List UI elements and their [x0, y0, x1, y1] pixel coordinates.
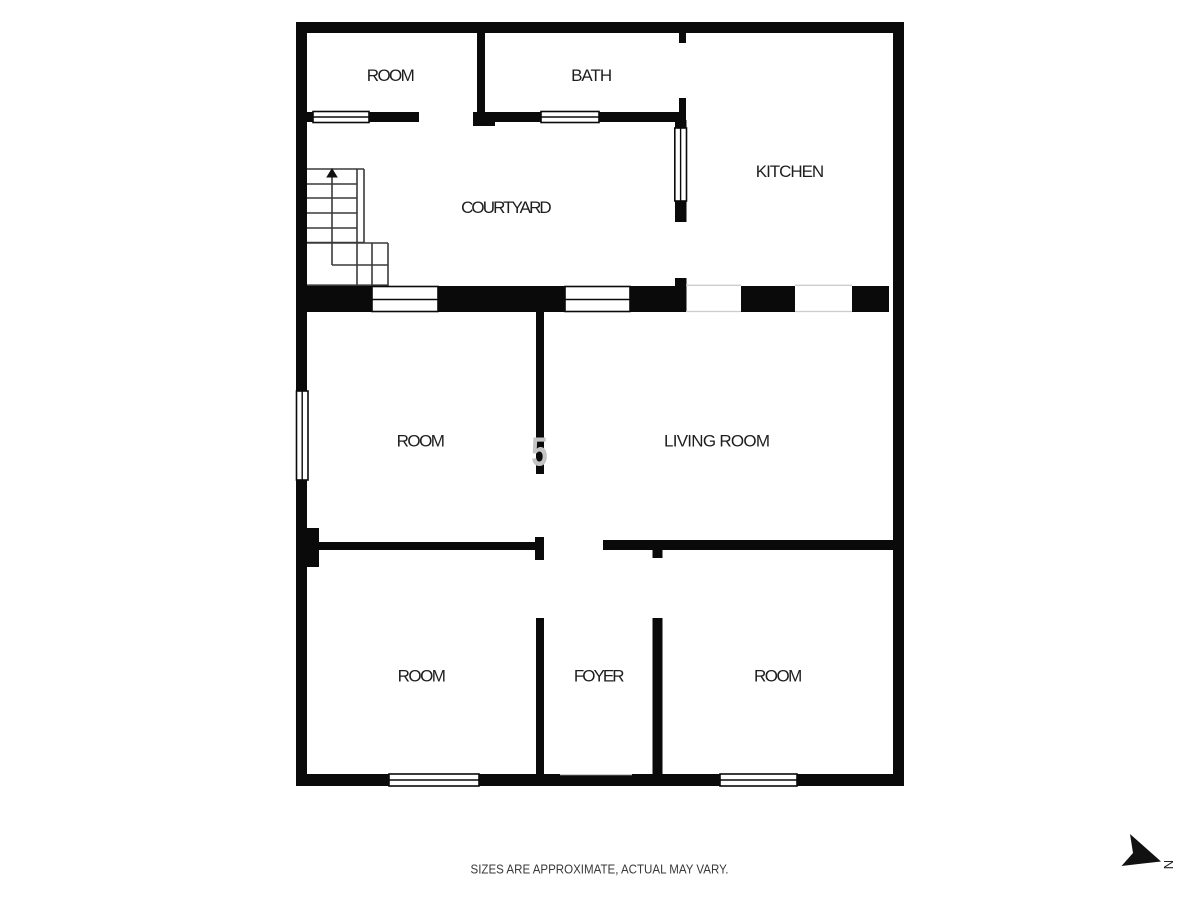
svg-text:5: 5 [531, 429, 547, 475]
svg-text:SIZES ARE APPROXIMATE, ACTUAL: SIZES ARE APPROXIMATE, ACTUAL MAY VARY. [471, 862, 729, 877]
svg-text:ROOM: ROOM [397, 431, 445, 450]
svg-text:LIVING ROOM: LIVING ROOM [664, 431, 770, 450]
svg-text:ROOM: ROOM [398, 667, 446, 686]
svg-text:ROOM: ROOM [367, 66, 415, 85]
svg-text:N: N [1161, 860, 1176, 869]
svg-text:COURTYARD: COURTYARD [461, 198, 552, 217]
svg-text:ROOM: ROOM [754, 667, 802, 686]
svg-text:KITCHEN: KITCHEN [756, 162, 824, 181]
svg-text:FOYER: FOYER [574, 667, 625, 686]
svg-text:BATH: BATH [571, 66, 612, 85]
